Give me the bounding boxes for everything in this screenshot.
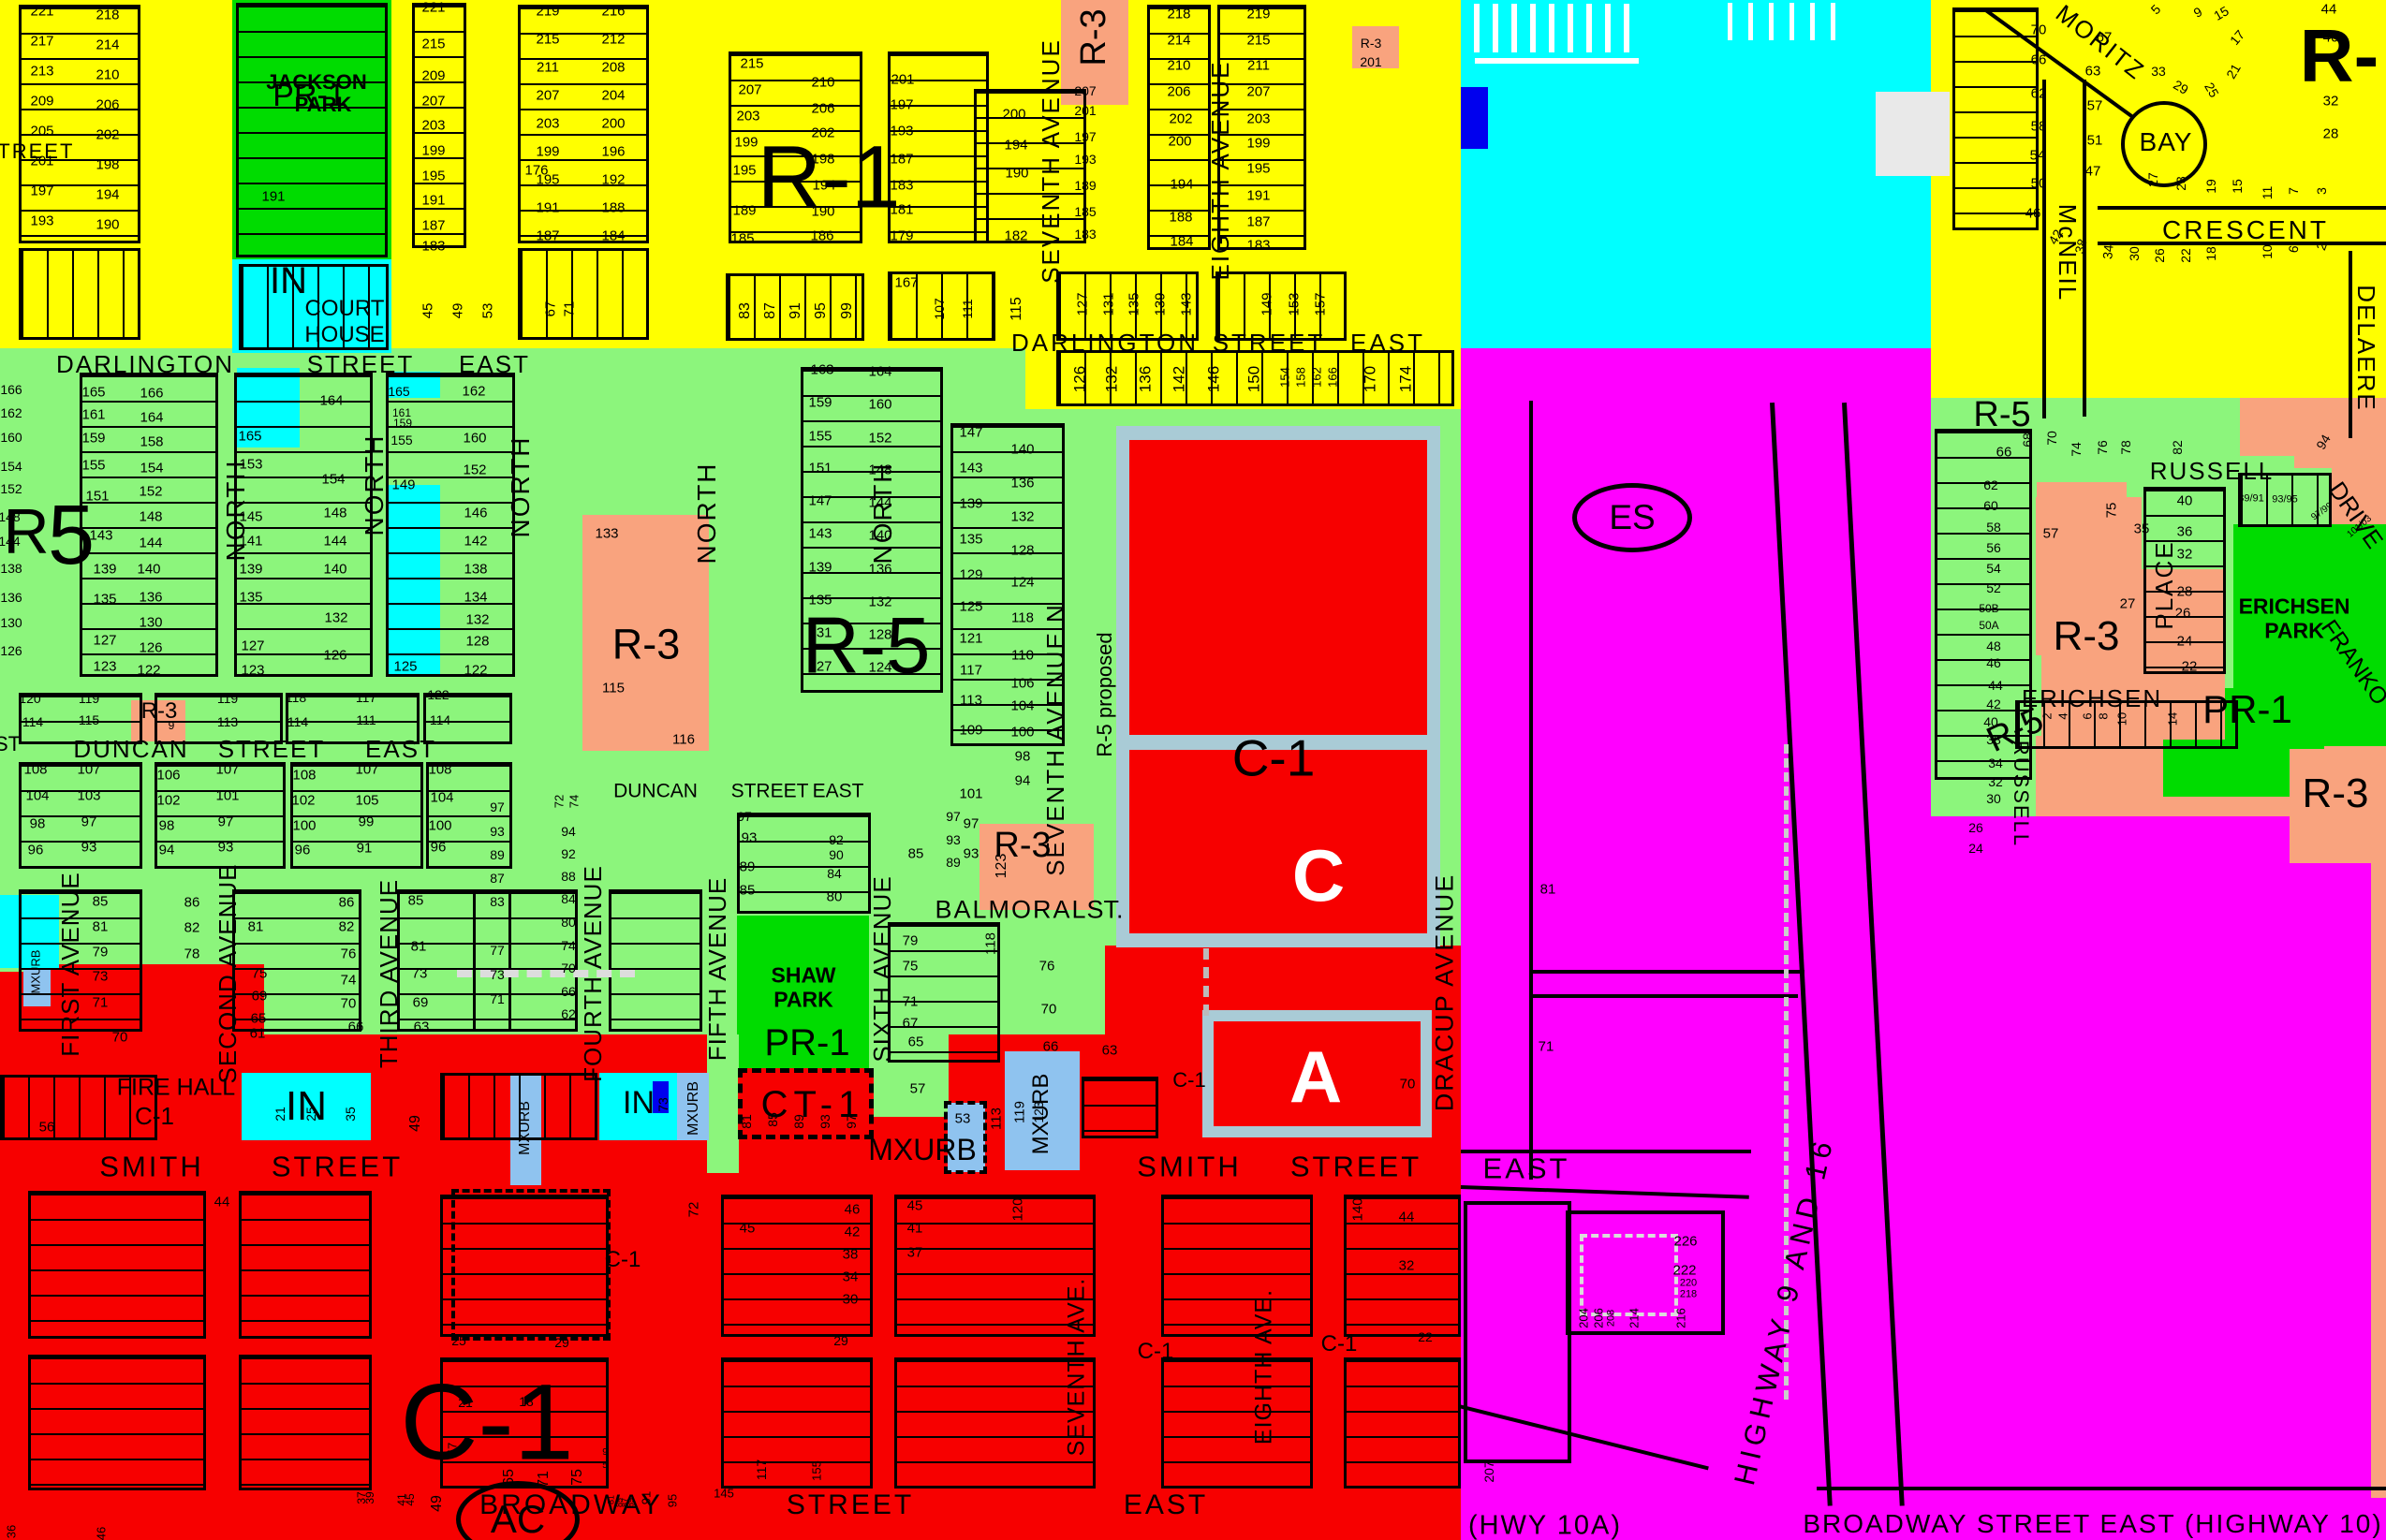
map-label: 160 xyxy=(0,431,22,444)
map-label: 40 xyxy=(2177,494,2193,508)
map-label: 110 xyxy=(1011,649,1034,663)
road-line xyxy=(1475,58,1639,64)
map-label: 53 xyxy=(481,303,495,319)
map-label: 70 xyxy=(561,961,576,975)
map-label: 115 xyxy=(1009,297,1024,321)
map-label: 39 xyxy=(364,1491,376,1503)
map-label: 2 xyxy=(2041,712,2054,719)
map-label: EAST xyxy=(1350,330,1425,355)
map-label: 218 xyxy=(1680,1290,1697,1300)
map-label: 117 xyxy=(755,1459,768,1480)
map-label: 47 xyxy=(2085,165,2101,179)
map-label: PR-1 xyxy=(2202,690,2292,729)
map-label: 161 xyxy=(81,408,105,422)
map-label: 30 xyxy=(1986,792,2001,805)
map-label: 166 xyxy=(0,383,22,396)
map-label: 136 xyxy=(1010,477,1034,491)
map-label: 66 xyxy=(1996,446,2012,460)
map-label: 22 xyxy=(2179,248,2192,263)
map-label: 56 xyxy=(1986,541,2001,554)
map-label: 122 xyxy=(427,688,449,701)
map-label: 214 xyxy=(1628,1308,1641,1328)
map-label: SECOND AVENUE xyxy=(215,863,240,1083)
map-label: 45 xyxy=(740,1222,756,1236)
map-label: 114 xyxy=(287,715,308,728)
map-label: 144 xyxy=(139,536,162,550)
road-line xyxy=(1533,994,1798,998)
map-label: 198 xyxy=(96,158,119,172)
map-label: NORTH xyxy=(223,459,249,561)
map-label: 22 xyxy=(2182,660,2198,674)
map-label: 130 xyxy=(139,616,162,630)
road-line xyxy=(1769,3,1774,40)
map-label: 136 xyxy=(0,591,22,604)
map-label: 87 xyxy=(763,302,778,319)
map-label: 149 xyxy=(391,478,415,492)
map-label: 93 xyxy=(218,841,234,855)
map-label: NORTH xyxy=(694,462,720,564)
map-label: 108 xyxy=(292,769,316,783)
map-label: 140 xyxy=(137,563,160,577)
map-label: STREET xyxy=(1290,1152,1421,1181)
map-label: 74 xyxy=(341,974,357,988)
map-label: PARK xyxy=(773,990,832,1011)
map-label: 90 xyxy=(829,848,844,861)
map-label: SIXTH AVENUE xyxy=(870,875,894,1062)
map-label: 120 xyxy=(1011,1197,1025,1221)
map-label: 144 xyxy=(323,535,346,549)
map-label: 58 xyxy=(1986,521,2001,534)
map-label: NORTH xyxy=(870,462,896,564)
map-label: 60 xyxy=(1983,499,1998,512)
map-label: DRACUP AVENUE xyxy=(1433,873,1458,1112)
map-label: 222 xyxy=(1672,1264,1696,1278)
road-line xyxy=(457,970,635,977)
map-label: 185 xyxy=(1074,205,1096,218)
map-label: 19 xyxy=(2204,179,2217,194)
map-label: FIRST AVENUE xyxy=(58,872,82,1056)
map-label: 220 xyxy=(1680,1279,1697,1289)
map-label: 70 xyxy=(1400,1078,1416,1092)
map-label: 106 xyxy=(156,769,180,783)
lot-block xyxy=(19,248,140,340)
map-label: 70 xyxy=(341,997,357,1011)
map-label: 140 xyxy=(323,563,346,577)
map-label: NORTH xyxy=(361,433,388,535)
lot-block xyxy=(974,89,1086,243)
map-label: 191 xyxy=(1246,189,1270,203)
map-label: 132 xyxy=(465,613,489,627)
map-label: 158 xyxy=(1295,367,1307,388)
map-label: 214 xyxy=(1167,34,1190,48)
map-label: 34 xyxy=(1988,756,2003,770)
map-label: 69 xyxy=(252,990,268,1004)
map-label: 107 xyxy=(933,298,946,319)
map-label: 184 xyxy=(601,229,625,243)
map-label: 32 xyxy=(2323,95,2339,109)
zone-area xyxy=(1427,426,1440,947)
map-label: SHAW xyxy=(772,965,836,987)
map-label: 154 xyxy=(1279,367,1291,388)
map-label: ST xyxy=(0,734,21,755)
map-label: 69 xyxy=(413,996,429,1010)
road-line xyxy=(1533,970,1804,974)
map-label: 89 xyxy=(946,856,961,869)
map-label: 126 xyxy=(1072,366,1088,392)
map-label: ERICHSEN xyxy=(2022,686,2162,711)
map-label: 136 xyxy=(139,591,162,605)
map-label: 26 xyxy=(1968,821,1983,834)
map-label: 152 xyxy=(868,432,891,446)
map-label: 79 xyxy=(903,934,919,948)
road-line xyxy=(1624,4,1629,52)
map-label: 128 xyxy=(465,635,489,649)
map-label: C-1 xyxy=(605,1249,641,1271)
map-label: 160 xyxy=(868,398,891,412)
map-label: 78 xyxy=(2119,440,2132,455)
map-label: 94 xyxy=(159,843,175,858)
map-label: 70 xyxy=(2045,431,2058,446)
map-label: 89/91 xyxy=(2238,494,2264,505)
map-label: 127 xyxy=(1076,292,1090,315)
map-label: 154 xyxy=(140,462,163,476)
map-label: 207 xyxy=(738,83,761,97)
map-label: 193 xyxy=(30,214,53,228)
map-label: 202 xyxy=(1169,112,1192,126)
map-label: 76 xyxy=(2096,440,2109,455)
map-label: STREET xyxy=(787,1491,914,1519)
map-label: 50B xyxy=(1979,603,1998,614)
map-label: 151 xyxy=(808,462,832,476)
map-label: 117 xyxy=(960,664,982,678)
map-label: 57 xyxy=(447,1443,459,1456)
map-label: IN xyxy=(623,1087,655,1119)
map-label: 160 xyxy=(463,432,486,446)
map-label: 219 xyxy=(1246,7,1270,22)
map-label: 149 xyxy=(1260,292,1274,315)
map-label: 50A xyxy=(1979,620,1998,631)
map-label: 100 xyxy=(428,819,451,833)
map-label: 70 xyxy=(2031,23,2047,37)
map-label: 99 xyxy=(359,815,375,829)
map-label: 126 xyxy=(323,649,346,663)
lot-block xyxy=(234,373,373,677)
map-label: 132 xyxy=(324,611,347,625)
map-label: 104 xyxy=(25,789,49,803)
map-label: R xyxy=(3,500,49,564)
map-label: 73 xyxy=(656,1097,670,1112)
map-label: 65 xyxy=(908,1035,924,1049)
map-label: 92 xyxy=(561,847,576,860)
map-label: 116 xyxy=(672,733,695,747)
map-label: 24 xyxy=(1968,842,1983,855)
map-label: (HWY 10A) xyxy=(1468,1513,1622,1540)
map-label: 159 xyxy=(81,432,105,446)
map-label: 135 xyxy=(959,533,982,547)
road-line xyxy=(1529,401,1533,1180)
map-label: 101 xyxy=(959,787,982,801)
map-label: 109 xyxy=(959,724,982,738)
map-label: 210 xyxy=(96,68,119,82)
map-label: 191 xyxy=(536,201,559,215)
map-label: 215 xyxy=(740,57,763,71)
map-label: 46 xyxy=(2025,207,2041,221)
map-label: NORTH xyxy=(508,435,534,537)
map-label: 104 xyxy=(430,791,453,805)
map-label: 93 xyxy=(946,833,961,846)
lot-block xyxy=(737,813,871,914)
map-label: 89 xyxy=(740,860,756,874)
zone-area xyxy=(1202,1126,1432,1137)
map-label: 132 xyxy=(1010,510,1034,524)
map-label: 216 xyxy=(601,5,625,19)
map-label: 77 xyxy=(490,944,505,957)
map-label: 207 xyxy=(1246,85,1270,99)
map-label: 75 xyxy=(903,960,919,974)
map-label: 67 xyxy=(903,1017,919,1031)
road-line xyxy=(1549,4,1554,52)
map-label: 71 xyxy=(93,996,109,1010)
map-label: R-1 xyxy=(757,134,900,223)
road-line xyxy=(1831,3,1835,40)
map-label: 108 xyxy=(23,763,47,777)
map-label: 85 xyxy=(408,894,424,908)
map-label: 49 xyxy=(430,1495,445,1512)
map-label: 170 xyxy=(1362,366,1378,392)
map-label: 79 xyxy=(93,946,109,960)
map-label: 26 xyxy=(2175,607,2191,621)
map-label: 114 xyxy=(22,715,43,728)
map-label: 44 xyxy=(1399,1210,1415,1225)
map-label: 5 xyxy=(48,493,95,578)
map-label: 71 xyxy=(490,992,505,1005)
map-label: 76 xyxy=(341,947,357,961)
map-label: 139 xyxy=(808,561,832,575)
map-label: 99 xyxy=(840,302,855,319)
map-label: 98 xyxy=(1015,750,1031,764)
map-label: R-5 xyxy=(803,607,931,686)
map-label: 197 xyxy=(1074,130,1096,143)
map-label: 136 xyxy=(868,563,891,577)
map-label: 139 xyxy=(959,497,982,511)
map-label: 25 xyxy=(304,1107,317,1122)
map-label: 183 xyxy=(421,240,445,254)
map-label: ERICHSEN xyxy=(2239,596,2350,618)
map-label: 66 xyxy=(348,1020,364,1034)
lot-block xyxy=(609,889,702,1032)
map-label: MXURB xyxy=(686,1081,701,1136)
map-label: 217 xyxy=(30,35,53,49)
map-label: 85 xyxy=(740,884,756,898)
map-label: MXURB xyxy=(518,1101,533,1155)
map-label: 49 xyxy=(408,1115,423,1132)
map-label: 155 xyxy=(81,459,105,473)
map-label: FIRE HALL xyxy=(117,1077,235,1100)
map-label: 215 xyxy=(1246,34,1270,48)
map-label: 54 xyxy=(1986,562,2001,575)
lot-block xyxy=(239,1355,372,1490)
map-label: 35 xyxy=(344,1107,357,1122)
map-label: 218 xyxy=(1167,7,1190,22)
map-label: 89 xyxy=(792,1114,805,1129)
map-label: MXURB xyxy=(30,950,42,994)
map-label: 140 xyxy=(1351,1197,1365,1221)
map-label: 113 xyxy=(217,715,238,728)
map-label: STREET xyxy=(1213,330,1326,355)
map-label: 138 xyxy=(464,563,487,577)
map-label: 139 xyxy=(1154,292,1168,315)
map-label: 36 xyxy=(6,1525,18,1538)
map-label: 211 xyxy=(537,61,559,75)
map-label: 29 xyxy=(554,1336,569,1349)
map-label: 102 xyxy=(156,794,180,808)
map-label: 66 xyxy=(561,985,576,998)
map-label: 183 xyxy=(1074,227,1096,241)
map-label: 97 xyxy=(964,817,979,831)
map-label: 85 xyxy=(93,895,109,909)
map-label: SEVENTH AVENUE N xyxy=(1043,603,1068,876)
map-label: 187 xyxy=(421,219,445,233)
map-label: 30 xyxy=(843,1293,859,1307)
map-label: 135 xyxy=(93,593,116,607)
map-label: 152 xyxy=(0,482,22,495)
map-label: 50 xyxy=(2031,177,2047,191)
map-label: 159 xyxy=(808,396,832,410)
map-label: R-3 xyxy=(2303,773,2369,814)
map-label: 85 xyxy=(908,847,924,861)
map-label: R-5 proposed xyxy=(1095,632,1115,756)
map-label: 162 xyxy=(0,406,22,419)
lot-block xyxy=(1464,1201,1571,1463)
map-label: 194 xyxy=(1004,139,1027,153)
map-label: 62 xyxy=(2031,87,2047,101)
map-label: 3 xyxy=(2315,187,2328,195)
map-label: 44 xyxy=(2321,3,2337,17)
map-label: STREET xyxy=(307,352,415,376)
overlay-badge: ES xyxy=(1572,483,1692,552)
map-label: 74 xyxy=(568,795,581,808)
map-label: 191 xyxy=(421,194,445,208)
map-label: 154 xyxy=(321,473,345,487)
map-label: 75 xyxy=(252,967,268,981)
map-label: 97 xyxy=(490,800,505,814)
map-label: 148 xyxy=(323,506,346,521)
map-label: 184 xyxy=(1170,235,1193,249)
map-label: 164 xyxy=(319,394,343,408)
map-label: 202 xyxy=(96,128,119,142)
map-label: 197 xyxy=(30,184,53,198)
map-label: 152 xyxy=(463,463,486,477)
map-label: 92 xyxy=(829,833,844,846)
map-label: 204 xyxy=(601,89,625,103)
map-label: R- xyxy=(2300,19,2379,94)
map-label: 91 xyxy=(788,302,803,319)
zone-area xyxy=(1461,87,1488,149)
map-label: EAST xyxy=(1124,1491,1208,1519)
map-label: 73 xyxy=(412,967,428,981)
map-label: 70 xyxy=(112,1031,128,1045)
map-label: 120 xyxy=(19,692,40,705)
map-label: C-1 xyxy=(1138,1341,1174,1363)
map-label: 146 xyxy=(464,506,487,521)
map-label: 66 xyxy=(1043,1040,1059,1054)
road-line xyxy=(1810,3,1815,40)
map-label: EIGHTH AVENUE xyxy=(1208,60,1232,280)
map-label: 95 xyxy=(667,1494,679,1507)
map-label: 93 xyxy=(742,831,758,845)
map-label: 94 xyxy=(561,825,576,838)
map-label: 7 xyxy=(2287,187,2300,195)
road-line xyxy=(1203,948,1209,1016)
map-label: 190 xyxy=(1005,167,1028,181)
map-label: 96 xyxy=(431,841,447,855)
map-label: 41 xyxy=(907,1222,923,1236)
map-label: 133 xyxy=(595,527,618,541)
map-label: PR-1 xyxy=(272,80,345,111)
map-label: 195 xyxy=(1246,162,1270,176)
map-label: 124 xyxy=(1010,576,1034,590)
map-label: 197 xyxy=(890,98,913,112)
map-label: 35 xyxy=(2134,522,2150,536)
map-label: 192 xyxy=(601,173,625,187)
map-label: 61 xyxy=(250,1027,266,1041)
map-label: 38 xyxy=(843,1248,859,1262)
map-label: 80 xyxy=(827,890,843,904)
map-label: C-1 xyxy=(400,1370,573,1477)
map-label: EAST xyxy=(813,782,864,801)
map-label: 15 xyxy=(2231,179,2244,194)
map-label: 46 xyxy=(1986,656,2001,669)
map-label: 204 xyxy=(1578,1308,1590,1328)
road-line xyxy=(1605,4,1611,52)
map-label: 106 xyxy=(1010,677,1034,691)
road-line xyxy=(1530,4,1536,52)
map-label: 9 xyxy=(602,1448,608,1458)
map-label: 136 xyxy=(1138,366,1154,392)
map-label: 111 xyxy=(961,299,974,318)
zone-area xyxy=(1116,933,1440,947)
map-label: 122 xyxy=(464,664,487,678)
map-label: 203 xyxy=(536,117,559,131)
map-label: 191 xyxy=(261,190,285,204)
map-label: 93 xyxy=(964,847,979,861)
zoning-map: City of Yorkton Where Good Things Happen… xyxy=(0,0,2386,1540)
map-label: 75 xyxy=(2105,503,2119,519)
map-label: 207 xyxy=(536,89,559,103)
map-label: 196 xyxy=(601,145,625,159)
map-label: 226 xyxy=(1673,1235,1697,1249)
map-label: 67 xyxy=(2097,31,2113,45)
map-label: 91 xyxy=(357,842,373,856)
map-label: 142 xyxy=(1171,366,1187,392)
map-label: 70 xyxy=(1041,1003,1057,1017)
map-label: 45 xyxy=(405,1493,416,1505)
map-label: 203 xyxy=(1246,112,1270,126)
map-label: 162 xyxy=(1311,367,1323,388)
map-label: 194 xyxy=(1170,178,1193,192)
map-label: 97 xyxy=(81,815,97,829)
map-label: SMITH xyxy=(1137,1152,1241,1181)
map-label: 215 xyxy=(536,33,559,47)
map-label: 128 xyxy=(1010,544,1034,558)
map-label: 126 xyxy=(0,644,22,657)
map-label: 93 xyxy=(490,825,505,838)
map-label: STREET xyxy=(272,1152,403,1181)
map-label: 155 xyxy=(808,430,832,444)
map-label: 174 xyxy=(1398,366,1414,392)
map-label: 72 xyxy=(553,795,566,808)
map-label: C-1 xyxy=(1321,1333,1358,1356)
